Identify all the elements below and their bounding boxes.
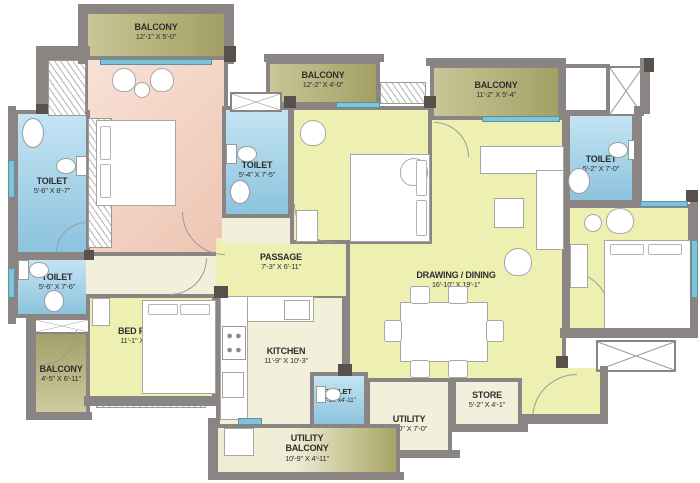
wall-column — [644, 58, 654, 72]
fridge-icon — [284, 300, 310, 320]
chair-icon — [112, 68, 136, 92]
pillow-icon — [148, 304, 178, 315]
wall-segment — [520, 414, 608, 424]
dining-chair-icon — [410, 286, 430, 304]
corridor — [86, 256, 230, 298]
dining-chair-icon — [448, 360, 468, 378]
dining-chair-icon — [448, 286, 468, 304]
wall-segment — [84, 396, 218, 406]
wall-segment — [396, 450, 460, 458]
window-sill — [238, 418, 262, 425]
window-hatch-icon — [380, 82, 426, 104]
wardrobe-hatch-icon — [48, 60, 86, 116]
wall-segment — [208, 472, 404, 480]
wardrobe-icon — [296, 210, 318, 242]
chair-icon — [300, 120, 326, 146]
wall-column — [214, 286, 228, 298]
washbasin-icon — [568, 168, 590, 194]
pillow-icon — [100, 126, 111, 160]
pillow-icon — [648, 244, 682, 255]
chair-icon — [606, 208, 634, 234]
room-store: STORE 5'-2" X 4'-1" — [452, 378, 522, 428]
room-balcony-3: BALCONY 11'-2" X 5'-4" — [430, 64, 562, 120]
wall-segment — [26, 316, 34, 420]
room-label: BALCONY 12'-2" X 4'-0" — [270, 70, 376, 89]
room-label: STORE 5'-2" X 4'-1" — [456, 390, 518, 409]
coffee-table-icon — [494, 198, 524, 228]
stove-icon — [222, 326, 246, 360]
room-label: BALCONY 4'-5" X 6'-11" — [36, 364, 86, 383]
lift-lobby — [562, 64, 610, 114]
sofa-icon — [536, 170, 564, 250]
wall-segment — [264, 54, 384, 62]
wall-column — [424, 96, 436, 108]
window-sill — [482, 116, 560, 122]
window-sill — [640, 201, 688, 207]
window-sill — [691, 240, 698, 298]
washbasin-icon — [44, 290, 64, 312]
chair-icon — [504, 248, 532, 276]
dining-chair-icon — [486, 320, 504, 342]
pillow-icon — [416, 160, 427, 196]
wall-column — [338, 364, 352, 376]
floor-plan: DRAWING / DINING 16'-10" X 19'-1" BALCON… — [0, 0, 700, 483]
wall-column — [224, 46, 236, 62]
wall-segment — [634, 106, 642, 206]
wall-segment — [600, 366, 608, 422]
room-label: BALCONY 11'-2" X 5'-4" — [434, 80, 558, 99]
shaft-icon — [596, 340, 676, 372]
washbasin-icon — [230, 180, 250, 204]
table-icon — [584, 214, 602, 232]
wardrobe-icon — [92, 298, 110, 326]
wardrobe-icon — [570, 244, 588, 288]
wall-segment — [208, 418, 216, 480]
room-label: BALCONY 12'-1" X 5'-0" — [88, 22, 224, 41]
washbasin-icon — [22, 118, 44, 148]
wall-column — [84, 250, 94, 260]
washing-machine-icon — [224, 428, 254, 456]
pillow-icon — [610, 244, 644, 255]
wall-segment — [26, 412, 92, 420]
table-icon — [134, 82, 150, 98]
dining-chair-icon — [410, 360, 430, 378]
pillow-icon — [100, 164, 111, 198]
dining-table-icon — [400, 302, 488, 362]
shaft-icon — [230, 92, 282, 112]
room-label: PASSAGE 7'-3" X 6'-11" — [216, 252, 346, 271]
room-passage: PASSAGE 7'-3" X 6'-11" — [216, 238, 346, 296]
wall-column — [284, 96, 296, 108]
window-sill — [336, 102, 380, 108]
wall-segment — [426, 58, 566, 66]
room-label: TOILET 5'-6" X 8'-7" — [18, 176, 86, 195]
sink-icon — [222, 372, 244, 398]
wall-segment — [78, 4, 234, 14]
toilet-vestibule — [222, 218, 292, 244]
wall-segment — [560, 328, 696, 338]
wall-column — [556, 356, 568, 368]
pillow-icon — [180, 304, 210, 315]
window-sill — [100, 59, 212, 65]
window-sill — [8, 160, 15, 198]
wall-segment — [452, 424, 528, 432]
dining-chair-icon — [384, 320, 402, 342]
chair-icon — [150, 68, 174, 92]
pillow-icon — [416, 200, 427, 236]
window-sill — [8, 268, 15, 298]
wall-column — [36, 104, 48, 114]
